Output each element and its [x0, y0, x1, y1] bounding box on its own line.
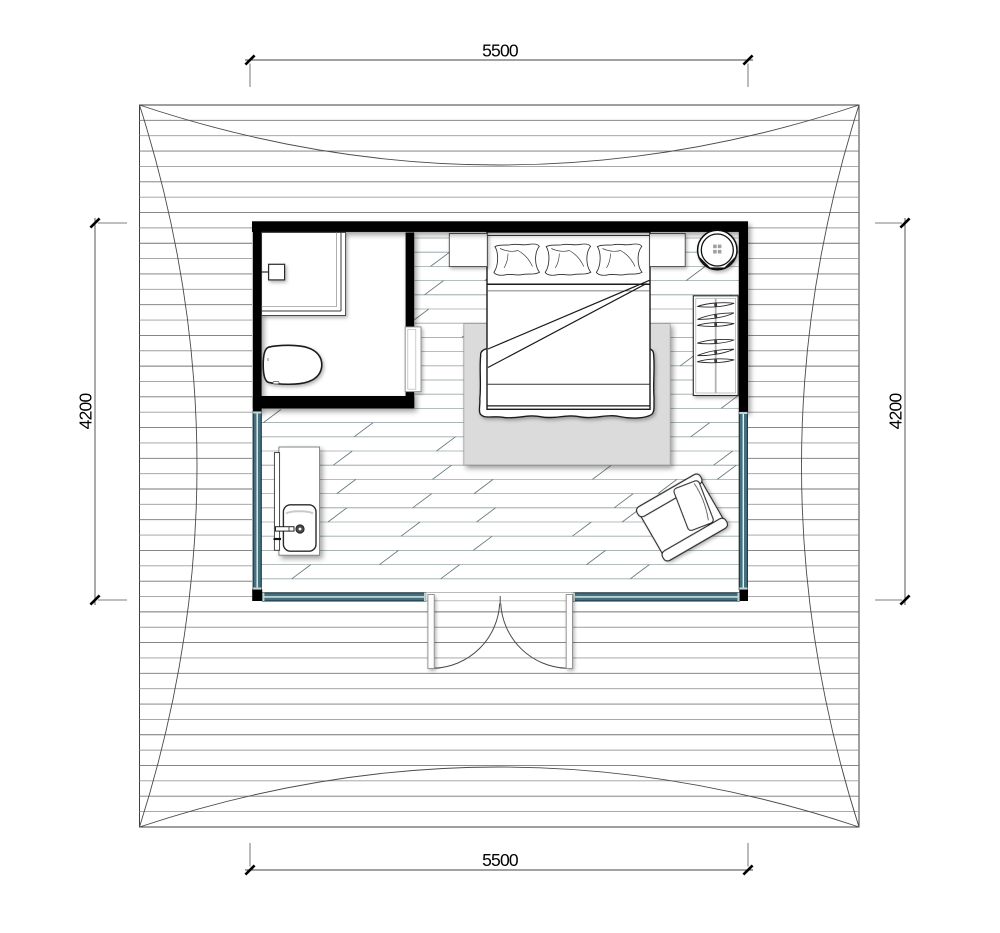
svg-text:4200: 4200 — [886, 393, 906, 430]
svg-text:4200: 4200 — [76, 393, 96, 430]
svg-text:5500: 5500 — [482, 41, 519, 61]
svg-text:5500: 5500 — [482, 850, 519, 870]
